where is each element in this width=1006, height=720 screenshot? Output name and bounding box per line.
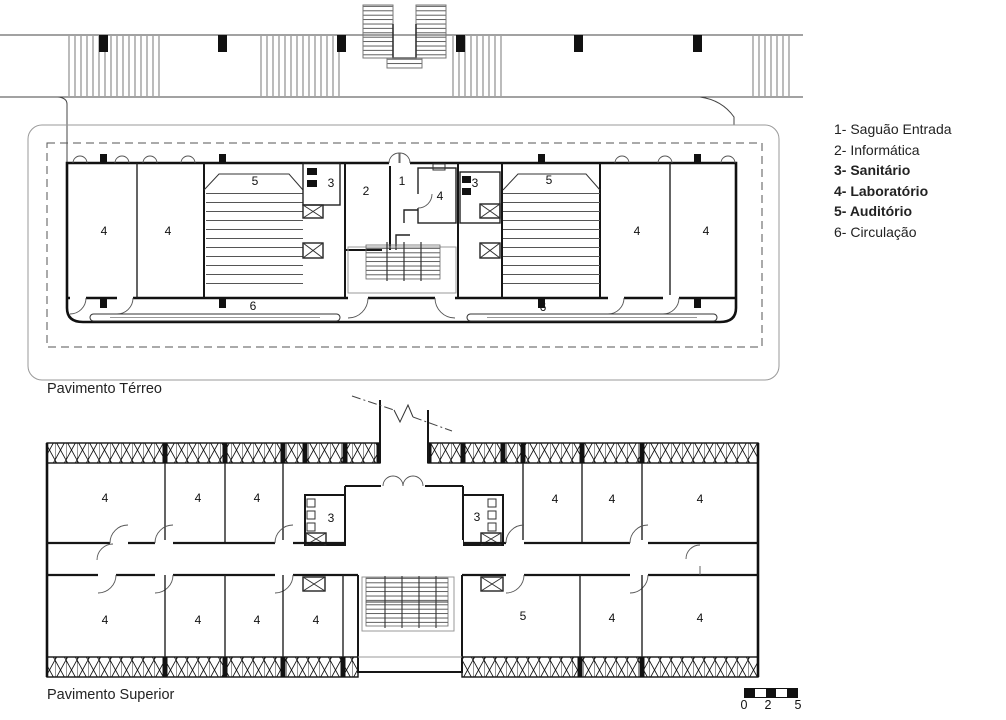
legend-item: 6- Circulação xyxy=(834,222,952,243)
floor-plan-sheet: 4453214354466 444334444444544 Pavimento … xyxy=(0,0,1006,720)
window-band-top xyxy=(47,443,758,463)
legend-item: 3- Sanitário xyxy=(834,160,952,181)
upper-floor-title: Pavimento Superior xyxy=(47,687,174,703)
room-legend: 1- Saguão Entrada 2- Informática 3- Sani… xyxy=(834,119,952,243)
ground-floor-title: Pavimento Térreo xyxy=(47,381,162,397)
band-separators xyxy=(163,443,645,677)
floor-plans-drawing xyxy=(0,0,1006,720)
window-band-bottom xyxy=(47,657,758,677)
scale-bar-graphic xyxy=(744,688,798,698)
upper-floor-stairs xyxy=(358,575,462,672)
legend-item: 1- Saguão Entrada xyxy=(834,119,952,140)
scale-label-5: 5 xyxy=(795,698,802,712)
entrance-exterior-stairs xyxy=(363,5,446,68)
scale-bar: 0 2 5 xyxy=(744,688,798,698)
entrance-hall xyxy=(345,476,463,543)
scale-label-2: 2 xyxy=(765,698,772,712)
ground-floor-plan xyxy=(67,153,736,322)
legend-item: 5- Auditório xyxy=(834,201,952,222)
sidewalk xyxy=(0,35,803,163)
upper-sanitary-right xyxy=(463,495,503,545)
upper-sanitary-left xyxy=(305,495,345,545)
legend-item: 4- Laboratório xyxy=(834,181,952,202)
upper-floor-plan xyxy=(47,396,758,677)
legend-item: 2- Informática xyxy=(834,140,952,161)
scale-label-0: 0 xyxy=(741,698,748,712)
